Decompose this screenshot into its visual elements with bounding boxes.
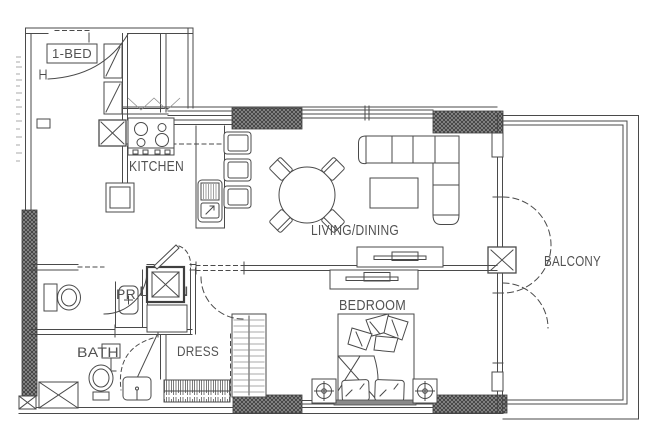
- bedroom-door-swing: [201, 277, 243, 319]
- floor-plan: LAUN: [0, 0, 651, 437]
- bedroom-label: BEDROOM: [339, 298, 406, 314]
- unit-label: 1-BED: [47, 44, 97, 63]
- column-hatch: [433, 111, 503, 133]
- dress-label: DRESS: [177, 344, 219, 359]
- kitchen-label: KITCHEN: [129, 159, 184, 175]
- stove: [128, 118, 174, 155]
- kitchen-left-wall: [123, 146, 128, 183]
- nightstand-left: [312, 379, 336, 403]
- dimension-ticks: [16, 57, 22, 161]
- column-hatch: [22, 210, 37, 396]
- coffee-table: [370, 178, 418, 208]
- laundry-door: [154, 245, 191, 269]
- duct-box-entry: [99, 120, 126, 146]
- clothes-rail: [164, 380, 230, 402]
- pr-label: PR: [116, 287, 136, 302]
- column-hatch: [433, 395, 507, 413]
- laundry-counter: [147, 305, 187, 332]
- drain-box-bottom-left: [19, 396, 36, 409]
- balcony-door-swing-bedroom: [503, 283, 548, 328]
- fridge: [106, 183, 134, 212]
- bath-toilet: [89, 365, 113, 400]
- tv-console-living: [357, 247, 443, 267]
- tv-console-bedroom: [330, 270, 418, 289]
- living-dining-label: LIVING/DINING: [311, 223, 399, 239]
- window-band-kitchen: [168, 111, 232, 125]
- pr-toilet: [44, 284, 81, 311]
- nightstand-right: [413, 379, 437, 403]
- column-hatch: [232, 108, 302, 129]
- column-box-balcony: [488, 247, 516, 273]
- double-bed: [334, 314, 416, 405]
- bath-vanity: [123, 377, 151, 400]
- headboard: [334, 400, 416, 405]
- balcony-label: BALCONY: [544, 254, 601, 270]
- column-hatch: [233, 395, 302, 413]
- balcony-door-swing-living: [503, 197, 551, 293]
- unit-label-text: 1-BED: [52, 47, 92, 61]
- bar-stools: [224, 132, 251, 208]
- bath-label: BATH: [77, 345, 119, 360]
- kitchen-sink: [198, 180, 222, 222]
- window-band-living: [302, 106, 433, 120]
- bath-dress-wall: [161, 335, 167, 380]
- washer: [147, 267, 184, 302]
- shower: [39, 382, 78, 408]
- wardrobe: [232, 314, 266, 397]
- floor-plan-drawing: LAUN: [0, 0, 651, 437]
- laundry-walls: [191, 268, 196, 334]
